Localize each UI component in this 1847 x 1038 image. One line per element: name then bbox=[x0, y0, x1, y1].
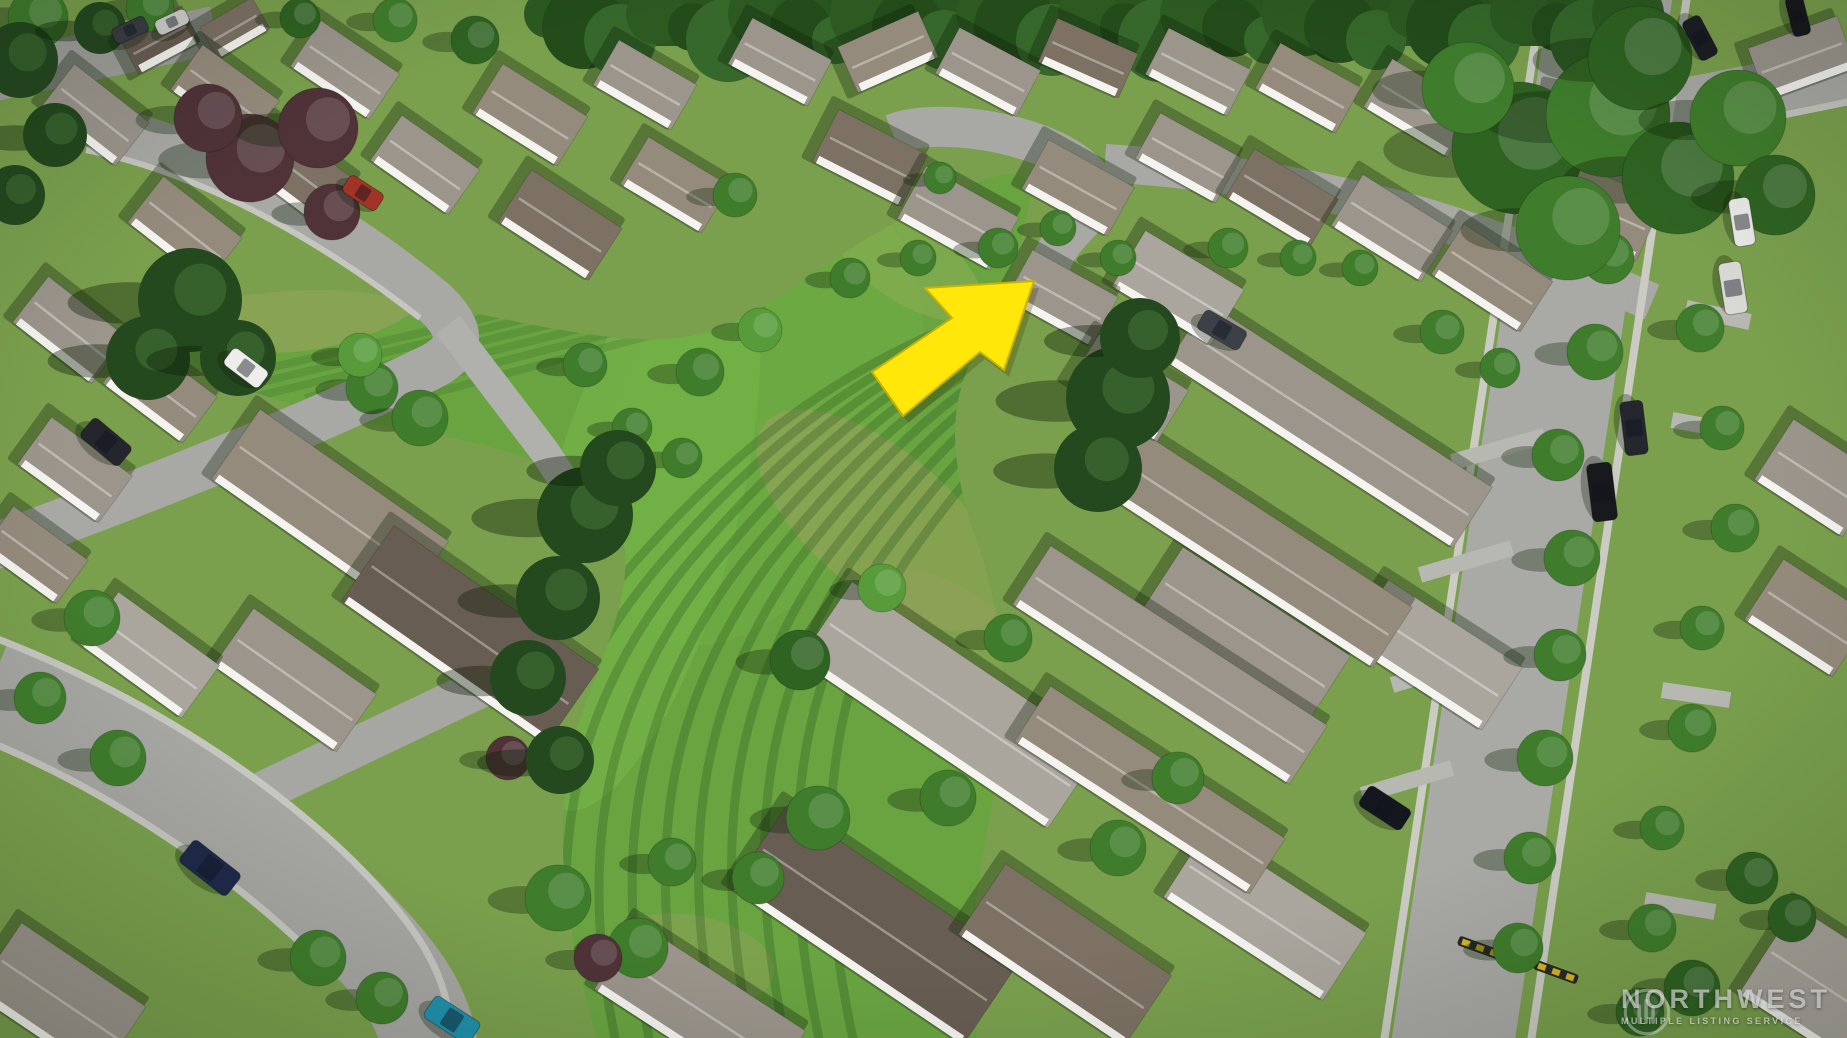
aerial-photo: NORTHWEST MULTIPLE LISTING SERVICE bbox=[0, 0, 1847, 1038]
neighborhood-aerial-scene bbox=[0, 0, 1847, 1038]
vignette bbox=[0, 0, 1847, 1038]
